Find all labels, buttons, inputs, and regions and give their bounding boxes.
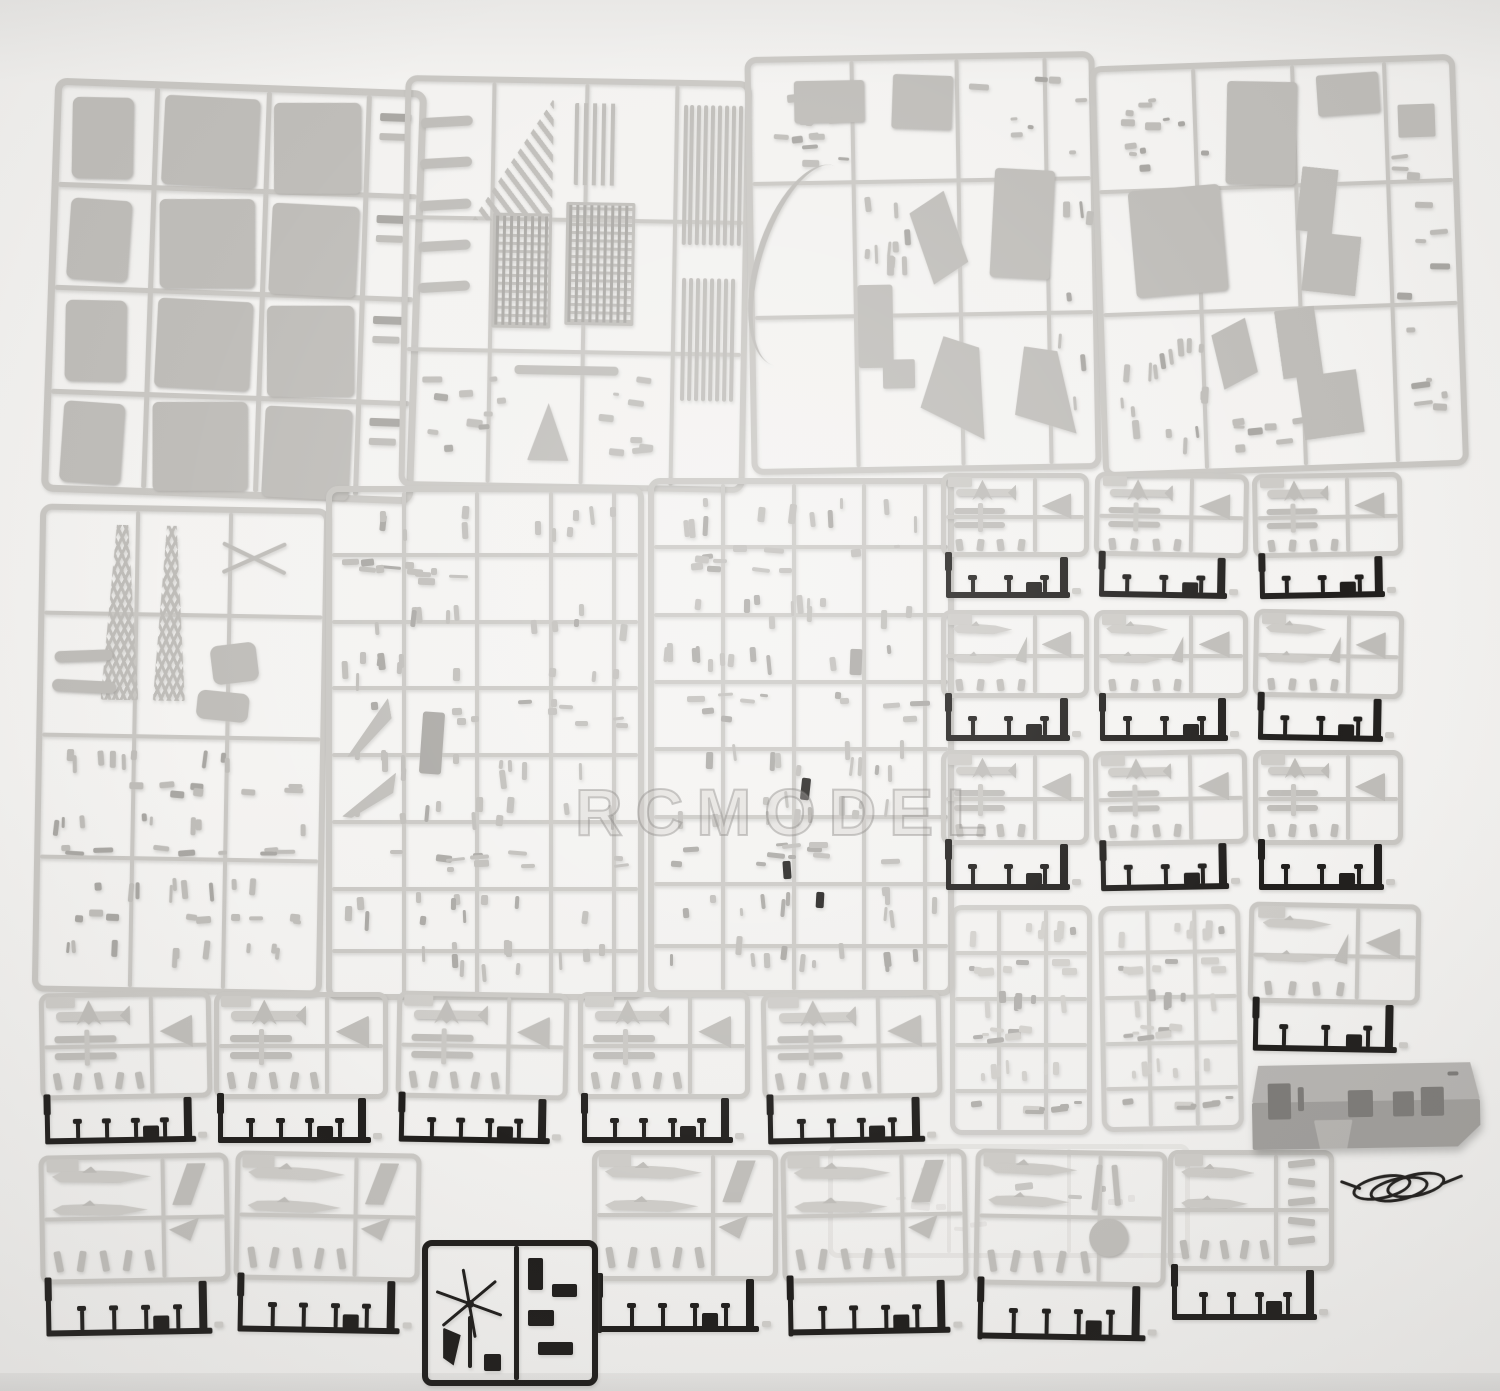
- runner-bar: [475, 492, 479, 994]
- small-part: [403, 529, 407, 541]
- black-runner: [45, 1289, 51, 1337]
- small-part: [887, 256, 894, 276]
- black-runner: [237, 1325, 400, 1334]
- black-part-block: [143, 1126, 159, 1138]
- black-part-block: [317, 1126, 333, 1138]
- corner-pad: [1100, 755, 1125, 767]
- black-part-stub: [109, 1306, 118, 1311]
- small-part: [457, 718, 466, 725]
- small-part: [1211, 966, 1226, 974]
- black-part-stub: [968, 864, 977, 869]
- small-part: [260, 852, 277, 856]
- black-part-block: [1026, 873, 1042, 885]
- small-part: [616, 723, 628, 729]
- black-part-stub: [1163, 719, 1167, 735]
- small-part: [733, 545, 747, 552]
- runner-bar: [441, 1028, 447, 1065]
- small-part: [1132, 1031, 1139, 1034]
- corner-pad: [948, 477, 972, 487]
- small-part: [1430, 264, 1450, 270]
- sprue-detail-sprue-right: [648, 478, 954, 996]
- small-part: [1165, 959, 1178, 964]
- small-part: [1152, 965, 1162, 972]
- runner-bar: [862, 484, 866, 990]
- runner-bar: [978, 784, 983, 816]
- small-part: [361, 558, 375, 566]
- black-part-stub: [1356, 720, 1360, 736]
- small-part: [1022, 1071, 1028, 1081]
- black-part-stub: [485, 1118, 494, 1123]
- black-part-stub: [852, 1309, 856, 1330]
- small-part: [702, 516, 708, 536]
- small-part: [828, 510, 834, 528]
- black-part-stub: [1354, 864, 1363, 869]
- small-part: [407, 568, 423, 576]
- black-runner: [977, 1332, 1145, 1341]
- black-part-stub: [1199, 1292, 1208, 1297]
- deck-panel: [66, 197, 133, 282]
- deck-panel: [159, 199, 254, 288]
- small-part: [416, 892, 421, 903]
- small-part: [1003, 966, 1013, 974]
- black-part-stub: [1162, 577, 1166, 593]
- sprue-weapons-sprue-1: [950, 905, 1092, 1135]
- black-part-stub: [1074, 1309, 1083, 1314]
- small-part: [773, 134, 788, 140]
- landing-gear-bit: [1152, 678, 1161, 691]
- runner-bar: [946, 515, 1084, 519]
- black-part-stub: [1198, 863, 1207, 868]
- sprue-aircraft-sprue-grid-2: [1093, 472, 1249, 607]
- black-part-stub: [131, 1118, 140, 1123]
- small-part: [1392, 166, 1409, 170]
- small-part: [451, 941, 457, 949]
- black-part-stub: [112, 1310, 116, 1331]
- corner-pad: [1103, 476, 1128, 487]
- black-part-stub: [271, 1306, 275, 1327]
- small-part: [670, 954, 673, 966]
- black-runner: [597, 1326, 760, 1332]
- small-part: [721, 715, 732, 722]
- corner-pad: [788, 1155, 820, 1169]
- landing-gear-bit: [1288, 539, 1296, 552]
- black-part-stub: [144, 1309, 148, 1330]
- black-part-stub: [338, 1121, 342, 1138]
- black-part-stub: [362, 1304, 371, 1309]
- small-part: [1165, 428, 1171, 437]
- sprue-aircraft-sprue-grid-8: [1093, 749, 1250, 900]
- black-runner-pin: [1060, 557, 1068, 594]
- black-runner-pin: [721, 1098, 729, 1139]
- black-sprue-frame: [422, 1240, 598, 1386]
- black-part-stub: [173, 1305, 182, 1310]
- small-part: [275, 849, 295, 853]
- black-part-stub: [77, 1306, 86, 1311]
- small-part: [892, 242, 898, 253]
- black-part-stub: [73, 1119, 82, 1124]
- small-part: [1232, 417, 1245, 425]
- black-runner-pin: [937, 1280, 946, 1330]
- runner-bar: [946, 797, 1084, 801]
- grating-mesh: [491, 213, 552, 329]
- small-part: [807, 598, 810, 609]
- black-part-block: [1183, 724, 1199, 735]
- corner-pad: [948, 614, 972, 625]
- black-part-stub: [1281, 864, 1290, 869]
- black-part-stub: [430, 1120, 434, 1137]
- black-part-stub: [1320, 867, 1324, 885]
- black-part-stub: [1123, 716, 1132, 721]
- deck-panel: [154, 298, 253, 392]
- black-part-stub: [102, 1118, 111, 1123]
- black-part-stub: [1280, 1024, 1289, 1029]
- runner-bar: [1132, 785, 1138, 817]
- black-part-stub: [1159, 574, 1168, 579]
- small-part: [191, 817, 197, 835]
- sprue-aircraft-sprue-grid-3: [1252, 472, 1404, 607]
- small-part: [1406, 327, 1415, 332]
- small-part: [94, 883, 101, 892]
- small-part: [1140, 164, 1152, 171]
- black-part-stub: [1004, 864, 1013, 869]
- black-runner: [582, 1137, 732, 1143]
- deck-panel: [71, 97, 134, 179]
- runner-tab: [215, 1322, 224, 1328]
- corner-pad: [599, 1154, 631, 1167]
- small-part: [452, 954, 459, 968]
- small-part: [548, 707, 557, 714]
- sprue-aircraft-sprue-row2-2: [232, 1150, 421, 1343]
- black-part-stub: [1227, 1292, 1236, 1297]
- sprue-aircraft-sprue-row1-1: [39, 991, 214, 1152]
- black-part-stub: [857, 1118, 866, 1123]
- black-part-block: [869, 1126, 885, 1138]
- black-runner-pin: [1217, 558, 1226, 595]
- small-part: [762, 797, 769, 806]
- small-part: [368, 438, 396, 446]
- black-part-stub: [697, 1118, 706, 1123]
- black-part-stub: [456, 1117, 465, 1122]
- runner-tab: [1072, 588, 1081, 594]
- small-part: [344, 906, 351, 921]
- black-part-stub: [800, 1122, 804, 1139]
- corner-pad: [1102, 614, 1127, 625]
- black-runner: [514, 1246, 519, 1380]
- black-part-stub: [268, 1302, 277, 1307]
- small-part: [820, 598, 826, 607]
- island-block: [891, 74, 952, 130]
- runner-bar: [923, 484, 927, 990]
- island-block: [794, 80, 865, 123]
- black-part: [528, 1310, 554, 1326]
- sprue-aircraft-sprue-row2-4: [780, 1148, 969, 1345]
- black-runner: [46, 1136, 196, 1145]
- small-part: [754, 595, 760, 605]
- runner-tab: [1385, 732, 1394, 738]
- black-part-stub: [1125, 577, 1129, 593]
- black-part-stub: [971, 867, 975, 885]
- black-part-stub: [1282, 1027, 1286, 1046]
- small-part: [707, 565, 721, 572]
- landing-gear-bit: [1267, 678, 1275, 691]
- deck-panel: [274, 103, 361, 194]
- runner-bar: [623, 1029, 628, 1066]
- black-runner-pin: [1218, 698, 1226, 737]
- black-part-stub: [797, 1119, 806, 1124]
- black-part-stub: [246, 1118, 255, 1123]
- black-part-stub: [860, 1121, 864, 1138]
- corner-pad: [768, 997, 799, 1008]
- black-part-stub: [1354, 574, 1363, 579]
- corner-pad: [243, 1155, 275, 1168]
- small-part: [1074, 1101, 1082, 1104]
- small-part: [1415, 239, 1426, 243]
- small-part: [786, 892, 790, 906]
- small-part: [476, 797, 483, 812]
- sprue-power-cord: [1351, 1169, 1453, 1208]
- small-part: [739, 698, 754, 703]
- sprue-detail-sprue-left: [326, 486, 644, 1000]
- small-part: [612, 669, 618, 679]
- black-runner-pin: [1306, 1270, 1314, 1316]
- small-part: [1175, 923, 1181, 932]
- black-part-block: [1182, 583, 1198, 594]
- sprue-aircraft-sprue-row2-3: [592, 1150, 778, 1342]
- small-part: [910, 701, 930, 707]
- small-part: [74, 915, 83, 923]
- small-part: [619, 623, 627, 640]
- runner-bar: [332, 686, 638, 690]
- runner-bar: [332, 553, 638, 557]
- small-part: [1123, 966, 1132, 974]
- small-part: [790, 601, 794, 616]
- sprue-superstructure-block-sprue: [1089, 54, 1469, 479]
- black-runner-pin: [1218, 843, 1227, 885]
- small-part: [900, 740, 905, 759]
- black-part-stub: [76, 1122, 80, 1139]
- small-part: [1066, 293, 1072, 303]
- runner-bar: [84, 1029, 90, 1066]
- black-part-stub: [141, 1305, 150, 1310]
- small-part: [1312, 420, 1330, 426]
- runner-tab: [927, 1131, 936, 1137]
- sprue-aircraft-sprue-row2-5: [972, 1148, 1167, 1351]
- black-part-stub: [1255, 1292, 1264, 1297]
- black-part-stub: [302, 1307, 306, 1328]
- black-part-stub: [517, 1122, 521, 1139]
- small-part: [427, 428, 439, 434]
- hull-box-cutout: [1420, 1087, 1443, 1116]
- small-part: [342, 661, 349, 679]
- small-part: [982, 1033, 989, 1036]
- small-part: [469, 854, 488, 859]
- black-part-stub: [1201, 867, 1205, 885]
- small-part: [231, 913, 240, 920]
- black-part-stub: [1007, 578, 1011, 594]
- sprue-weapons-sprue-2: [1098, 904, 1244, 1132]
- small-part: [246, 944, 250, 954]
- black-part-stub: [1317, 864, 1326, 869]
- runner-bar: [1291, 784, 1296, 816]
- small-part: [284, 787, 303, 792]
- small-part: [1118, 932, 1125, 948]
- black-part-stub: [1126, 868, 1130, 886]
- runner-bar: [332, 887, 638, 891]
- small-part: [1201, 386, 1209, 403]
- small-part: [1201, 957, 1219, 964]
- black-part-stub: [1283, 719, 1287, 735]
- black-part-stub: [849, 1305, 858, 1310]
- black-part-stub: [1007, 719, 1011, 735]
- runner-tab: [402, 1323, 411, 1329]
- small-part: [551, 699, 558, 707]
- black-runner-pin: [358, 1098, 366, 1139]
- runner-tab: [1386, 879, 1395, 885]
- small-part: [1234, 425, 1245, 429]
- black-runner: [788, 1327, 951, 1336]
- black-part-block: [1346, 1034, 1362, 1047]
- black-part-stub: [1043, 719, 1047, 735]
- small-part: [508, 760, 512, 772]
- small-part: [451, 708, 461, 716]
- black-part-stub: [1197, 575, 1206, 580]
- black-runner-pin: [1373, 699, 1382, 738]
- black-part-stub: [1280, 715, 1289, 720]
- small-part: [706, 752, 713, 769]
- black-part-block: [1338, 725, 1354, 736]
- sprue-island-parts-sprue: [744, 51, 1101, 475]
- black-part-stub: [658, 1303, 667, 1308]
- black-part-block: [496, 1127, 512, 1139]
- runner-bar: [955, 1043, 1087, 1047]
- small-part: [490, 376, 499, 382]
- black-part-stub: [1202, 1295, 1206, 1314]
- black-runner-pin: [1060, 844, 1068, 886]
- sprue-deck-panel-sprue: [41, 78, 427, 505]
- black-part-stub: [1366, 1029, 1370, 1048]
- runner-bar: [955, 1089, 1087, 1093]
- black-part-stub: [1040, 864, 1049, 869]
- small-part: [1397, 292, 1412, 299]
- black-part-stub: [1009, 1308, 1018, 1313]
- black-part-stub: [613, 1121, 617, 1138]
- black-runner-pin: [387, 1281, 396, 1330]
- runner-tab: [1231, 878, 1240, 884]
- runner-tab: [373, 1133, 382, 1139]
- small-part: [518, 699, 532, 703]
- black-part-stub: [1321, 578, 1325, 594]
- small-part: [1018, 1025, 1032, 1034]
- landing-gear-bit: [955, 538, 964, 551]
- small-part: [840, 697, 849, 703]
- small-part: [436, 801, 441, 812]
- island-block: [1316, 72, 1381, 117]
- small-part: [893, 203, 897, 219]
- island-block: [857, 284, 893, 368]
- hangar-block: [1226, 81, 1297, 185]
- small-part: [172, 878, 176, 891]
- black-runner-pin: [1374, 844, 1382, 886]
- small-part: [984, 1001, 990, 1018]
- runner-tab: [1319, 1309, 1328, 1315]
- small-part: [522, 762, 527, 780]
- small-part: [845, 740, 851, 759]
- small-part: [981, 1073, 986, 1081]
- small-part: [579, 604, 584, 616]
- small-part: [1044, 1063, 1048, 1075]
- small-part: [111, 940, 118, 958]
- small-part: [530, 620, 537, 634]
- black-runner: [1172, 1314, 1317, 1320]
- runner-bar: [259, 1029, 264, 1066]
- small-part: [462, 910, 466, 923]
- small-part: [969, 931, 976, 947]
- block-part: [850, 649, 863, 675]
- runner-bar: [1258, 797, 1398, 801]
- black-part-stub: [888, 1117, 897, 1122]
- black-part-stub: [299, 1303, 308, 1308]
- black-part-stub: [971, 578, 975, 594]
- black-part-stub: [693, 1307, 697, 1328]
- runner-bar: [808, 1029, 814, 1066]
- runner-bar: [612, 492, 616, 994]
- small-part: [196, 915, 212, 923]
- small-part: [549, 667, 557, 676]
- small-part: [534, 521, 540, 535]
- small-part: [121, 754, 126, 770]
- small-part: [850, 548, 861, 557]
- black-part-stub: [610, 1118, 619, 1123]
- small-part: [1414, 202, 1432, 208]
- small-part: [382, 752, 388, 772]
- small-part: [360, 652, 366, 664]
- black-part-stub: [639, 1118, 648, 1123]
- black-part: [538, 1342, 573, 1355]
- small-part: [766, 811, 770, 825]
- black-part-block: [1026, 724, 1042, 735]
- landing-gear-bit: [955, 678, 964, 691]
- runner-tab: [1399, 1042, 1408, 1048]
- sprue-aircraft-sprue-grid-5: [1094, 610, 1248, 748]
- small-part: [1186, 338, 1191, 353]
- black-runner: [46, 1327, 212, 1336]
- black-runner-pin: [746, 1279, 754, 1329]
- small-part: [1062, 968, 1077, 975]
- small-part: [1025, 1110, 1044, 1115]
- black-part-stub: [884, 1308, 888, 1329]
- small-part: [763, 953, 770, 968]
- sprue-helicopter-rotor-black-sprue: [422, 1240, 598, 1386]
- black-part-stub: [459, 1121, 463, 1138]
- black-part-stub: [514, 1118, 523, 1123]
- small-part: [359, 566, 376, 572]
- black-part-stub: [1282, 575, 1291, 580]
- small-part: [567, 527, 574, 537]
- small-part: [1138, 103, 1152, 108]
- black-part-stub: [821, 1309, 825, 1330]
- black-part-stub: [1199, 578, 1203, 594]
- black-part-block: [702, 1313, 718, 1327]
- black-part-stub: [1286, 1295, 1290, 1314]
- sprue-grating-sprue: [398, 75, 751, 493]
- small-part: [1433, 403, 1447, 411]
- black-part-stub: [1041, 1309, 1050, 1314]
- small-part: [1183, 438, 1187, 455]
- black-part-stub: [80, 1310, 84, 1331]
- small-part: [1048, 77, 1060, 85]
- radar-part: [209, 641, 260, 685]
- black-part-stub: [1040, 575, 1049, 580]
